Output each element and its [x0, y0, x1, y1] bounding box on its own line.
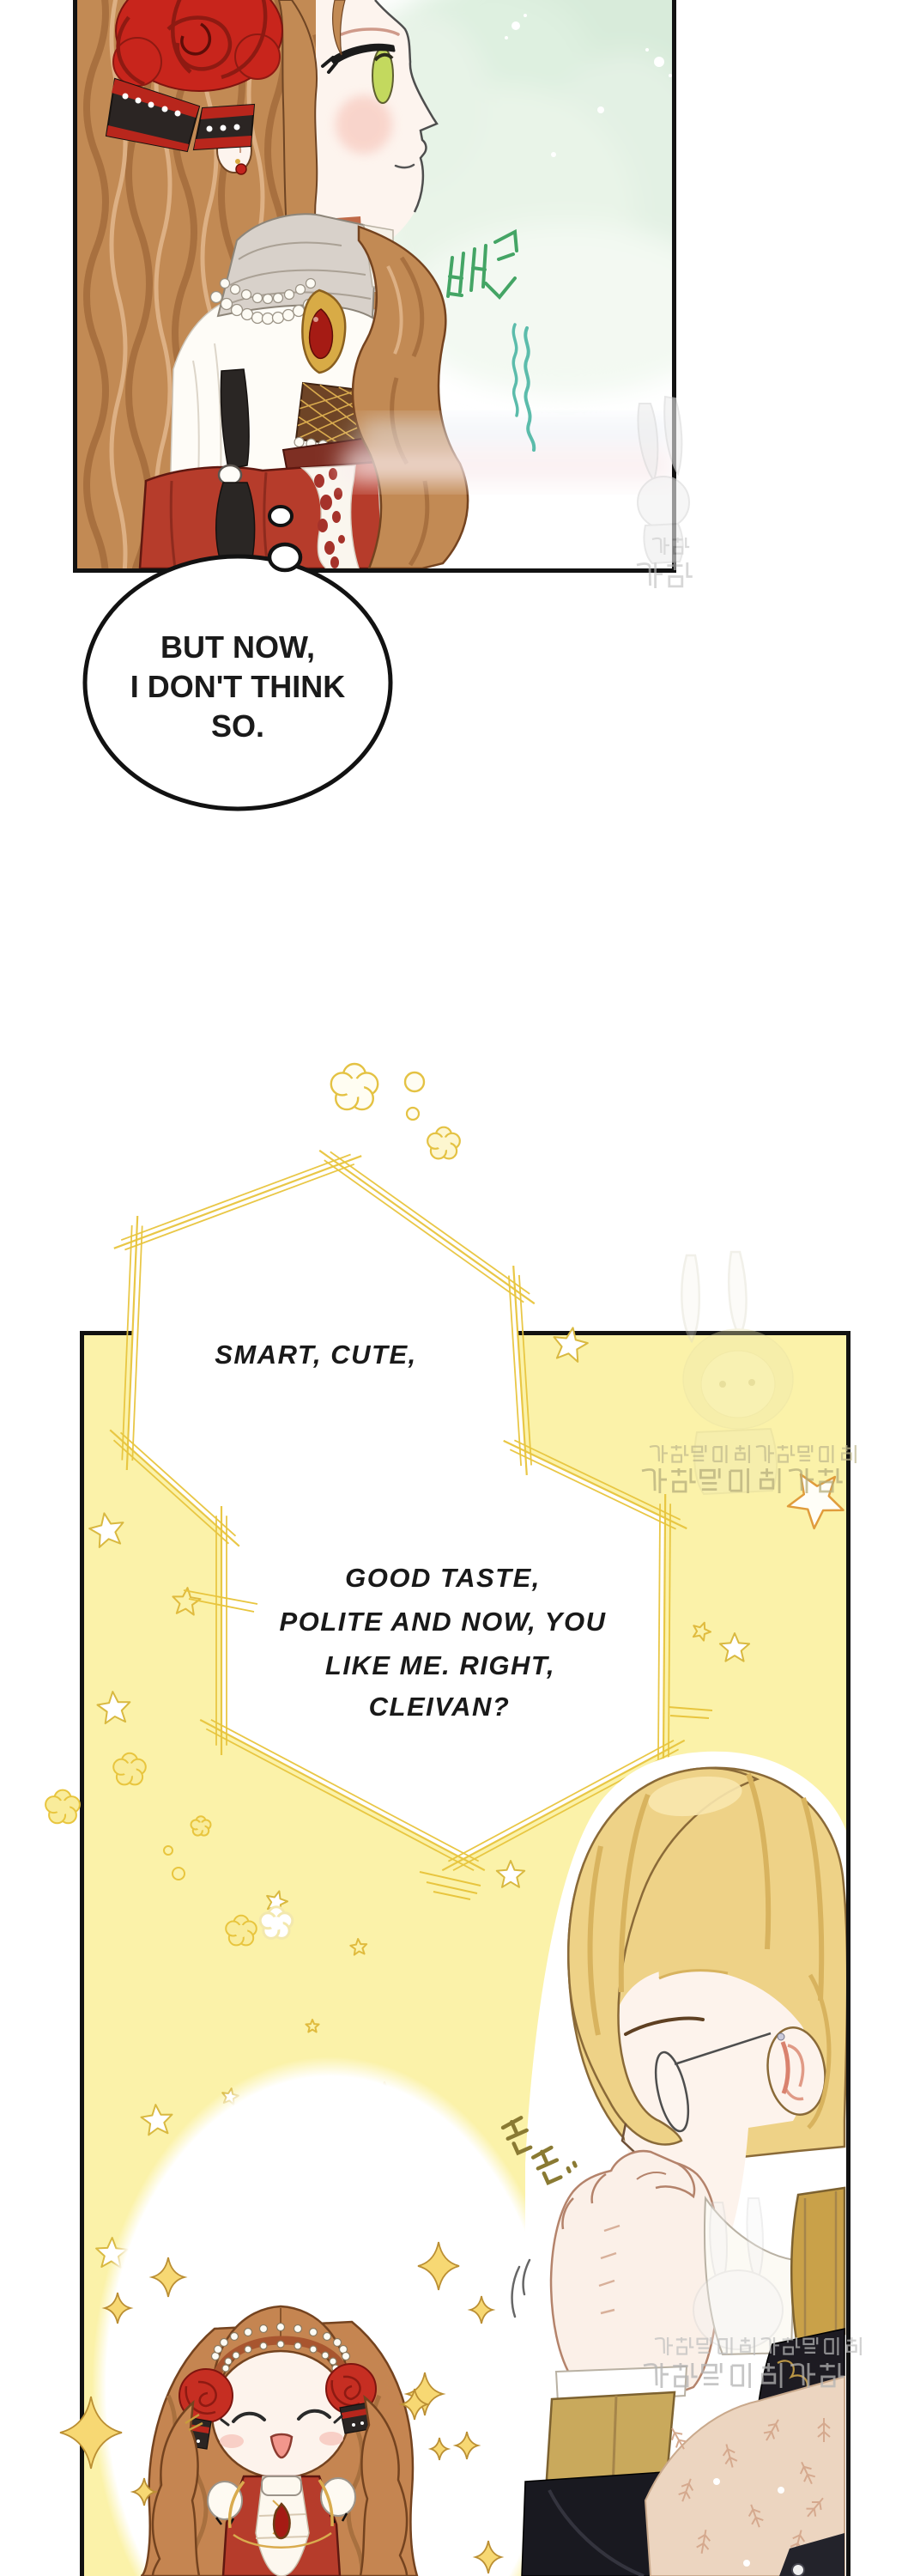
svg-text:SO.: SO.: [211, 708, 264, 744]
svg-text:CLEIVAN?: CLEIVAN?: [369, 1692, 511, 1722]
svg-text:I DON'T THINK: I DON'T THINK: [130, 669, 346, 704]
svg-text:GOOD TASTE,: GOOD TASTE,: [345, 1563, 541, 1593]
svg-text:BUT NOW,: BUT NOW,: [160, 629, 315, 665]
svg-text:POLITE AND NOW, YOU: POLITE AND NOW, YOU: [280, 1607, 607, 1637]
svg-text:SMART, CUTE,: SMART, CUTE,: [215, 1340, 417, 1370]
svg-text:LIKE ME. RIGHT,: LIKE ME. RIGHT,: [325, 1650, 555, 1680]
